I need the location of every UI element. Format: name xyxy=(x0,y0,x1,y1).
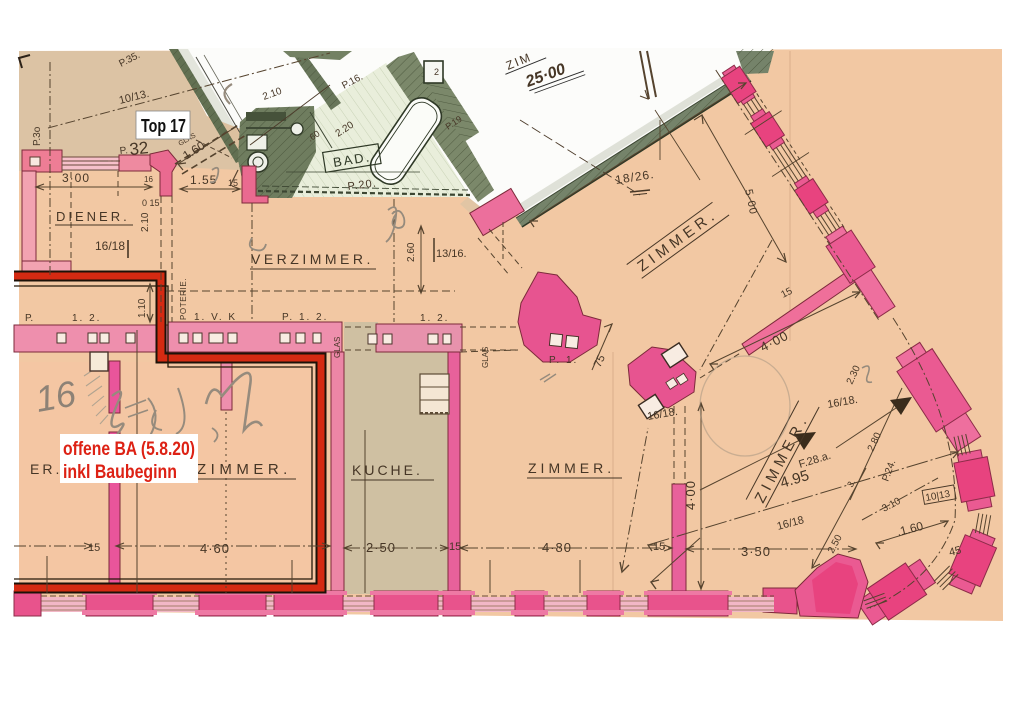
svg-text:15: 15 xyxy=(449,541,461,553)
svg-text:1.10: 1.10 xyxy=(137,298,148,318)
svg-text:offene BA (5.8.20): offene BA (5.8.20) xyxy=(63,439,195,460)
svg-text:inkl Baubeginn: inkl Baubeginn xyxy=(63,462,177,483)
svg-text:15: 15 xyxy=(653,541,665,553)
svg-text:1. 2.: 1. 2. xyxy=(420,313,449,324)
svg-text:32: 32 xyxy=(129,138,150,159)
svg-text:2.60: 2.60 xyxy=(406,242,417,262)
svg-text:GLAS: GLAS xyxy=(333,337,342,358)
svg-text:15: 15 xyxy=(228,178,238,188)
svg-text:13/16.: 13/16. xyxy=(436,248,467,260)
svg-text:VERZIMMER.: VERZIMMER. xyxy=(251,251,374,267)
svg-text:3·00: 3·00 xyxy=(62,171,90,185)
svg-text:4·00: 4·00 xyxy=(683,480,698,510)
svg-text:16/18: 16/18 xyxy=(95,239,125,253)
svg-text:15: 15 xyxy=(88,542,100,554)
svg-text:KUCHE.: KUCHE. xyxy=(352,462,423,478)
svg-text:P. 1. 2.: P. 1. 2. xyxy=(282,312,328,323)
svg-text:2: 2 xyxy=(434,67,439,77)
svg-text:0 15: 0 15 xyxy=(142,198,160,208)
svg-text:GLAS: GLAS xyxy=(481,347,490,368)
svg-text:P.: P. xyxy=(119,145,128,157)
svg-text:P.3o: P.3o xyxy=(32,126,43,146)
svg-text:POTERIE.: POTERIE. xyxy=(179,278,188,320)
svg-text:1. V. K: 1. V. K xyxy=(194,312,237,323)
svg-text:4·60: 4·60 xyxy=(200,541,230,556)
svg-text:16: 16 xyxy=(144,175,153,184)
svg-text:2.10: 2.10 xyxy=(140,212,151,232)
svg-text:ZIMMER.: ZIMMER. xyxy=(197,461,292,478)
svg-text:ZIMMER.: ZIMMER. xyxy=(528,460,615,476)
svg-text:16: 16 xyxy=(32,372,80,420)
svg-text:DIENER.: DIENER. xyxy=(56,209,130,224)
svg-text:2·50: 2·50 xyxy=(366,540,396,555)
svg-text:1. 2.: 1. 2. xyxy=(72,313,101,324)
svg-text:1.55: 1.55 xyxy=(190,173,217,187)
svg-text:P. 1.: P. 1. xyxy=(549,355,578,366)
svg-text:Top 17: Top 17 xyxy=(141,116,186,136)
svg-text:4·80: 4·80 xyxy=(542,540,572,555)
svg-text:ER.: ER. xyxy=(30,461,62,477)
svg-text:3·50: 3·50 xyxy=(741,544,771,559)
svg-text:P.: P. xyxy=(25,313,33,324)
